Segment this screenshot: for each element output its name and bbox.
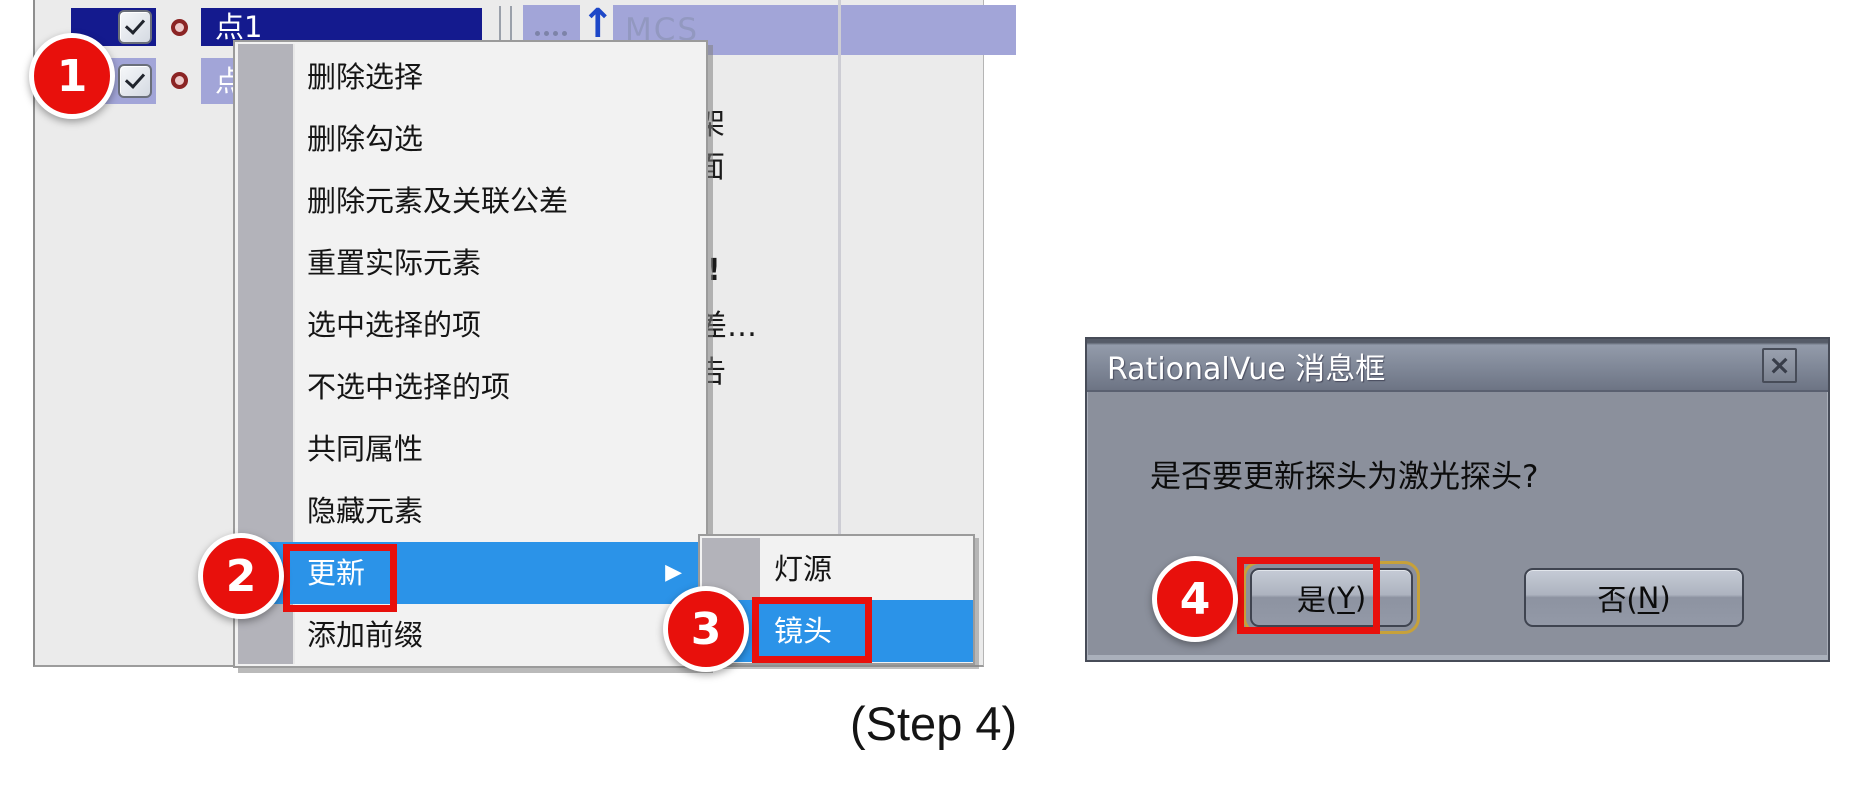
menu-item-delete-element-and-tolerance[interactable]: 删除元素及关联公差	[235, 170, 706, 232]
menu-item-check-selected[interactable]: 选中选择的项	[235, 294, 706, 356]
step-badge-2: 2	[198, 533, 284, 619]
step-badge-4: 4	[1152, 556, 1238, 642]
point-icon	[171, 72, 188, 89]
no-button-accesskey: N	[1638, 581, 1660, 615]
checkbox-point1[interactable]	[118, 10, 152, 44]
no-button[interactable]: 否(N)	[1524, 568, 1744, 627]
dialog-title: RationalVue 消息框	[1107, 339, 1385, 392]
menu-item-uncheck-selected[interactable]: 不选中选择的项	[235, 356, 706, 418]
menu-item-add-prefix[interactable]: 添加前缀	[235, 604, 706, 666]
header-band-right	[841, 5, 1016, 55]
checkbox-point2[interactable]	[118, 64, 152, 98]
menu-item-reset-actual-element[interactable]: 重置实际元素	[235, 232, 706, 294]
close-icon[interactable]: ×	[1762, 348, 1797, 383]
dialog-message: 是否要更新探头为激光探头?	[1150, 451, 1538, 496]
check-icon	[125, 14, 145, 35]
step-badge-2-number: 2	[226, 551, 257, 602]
menu-item-delete-checked[interactable]: 删除勾选	[235, 108, 706, 170]
step-badge-3: 3	[663, 586, 749, 672]
screenshot-stage: ↑ MCS 点1 点2 架 面 ! 差… 告 删除选择 删除	[0, 0, 1850, 785]
annotation-box-update	[283, 544, 397, 612]
splitter-line	[499, 6, 501, 40]
step-caption: (Step 4)	[850, 696, 1017, 751]
dialog-titlebar: RationalVue 消息框 ×	[1087, 339, 1828, 392]
coordinate-axis-icon: ↑	[581, 4, 615, 44]
tree-item-point1-label: 点1	[215, 13, 262, 42]
point-icon	[171, 19, 188, 36]
no-button-label: 否(	[1597, 577, 1637, 619]
menu-item-delete-selection[interactable]: 删除选择	[235, 46, 706, 108]
step-badge-1: 1	[29, 33, 115, 119]
step-badge-3-number: 3	[691, 604, 722, 655]
step-badge-1-number: 1	[57, 51, 88, 102]
dialog-bottom-edge	[1087, 655, 1828, 660]
clipped-text-fragment: !	[707, 256, 721, 286]
submenu-item-light-source[interactable]: 灯源	[700, 538, 973, 600]
menu-item-hide-element[interactable]: 隐藏元素	[235, 480, 706, 542]
no-button-label-close: )	[1659, 581, 1670, 615]
annotation-box-lens	[752, 597, 872, 663]
check-icon	[125, 68, 145, 89]
step-badge-4-number: 4	[1180, 574, 1211, 625]
splitter-line	[510, 6, 512, 40]
menu-item-common-properties[interactable]: 共同属性	[235, 418, 706, 480]
annotation-box-yes	[1237, 557, 1380, 634]
grip-dots-icon	[535, 31, 540, 36]
